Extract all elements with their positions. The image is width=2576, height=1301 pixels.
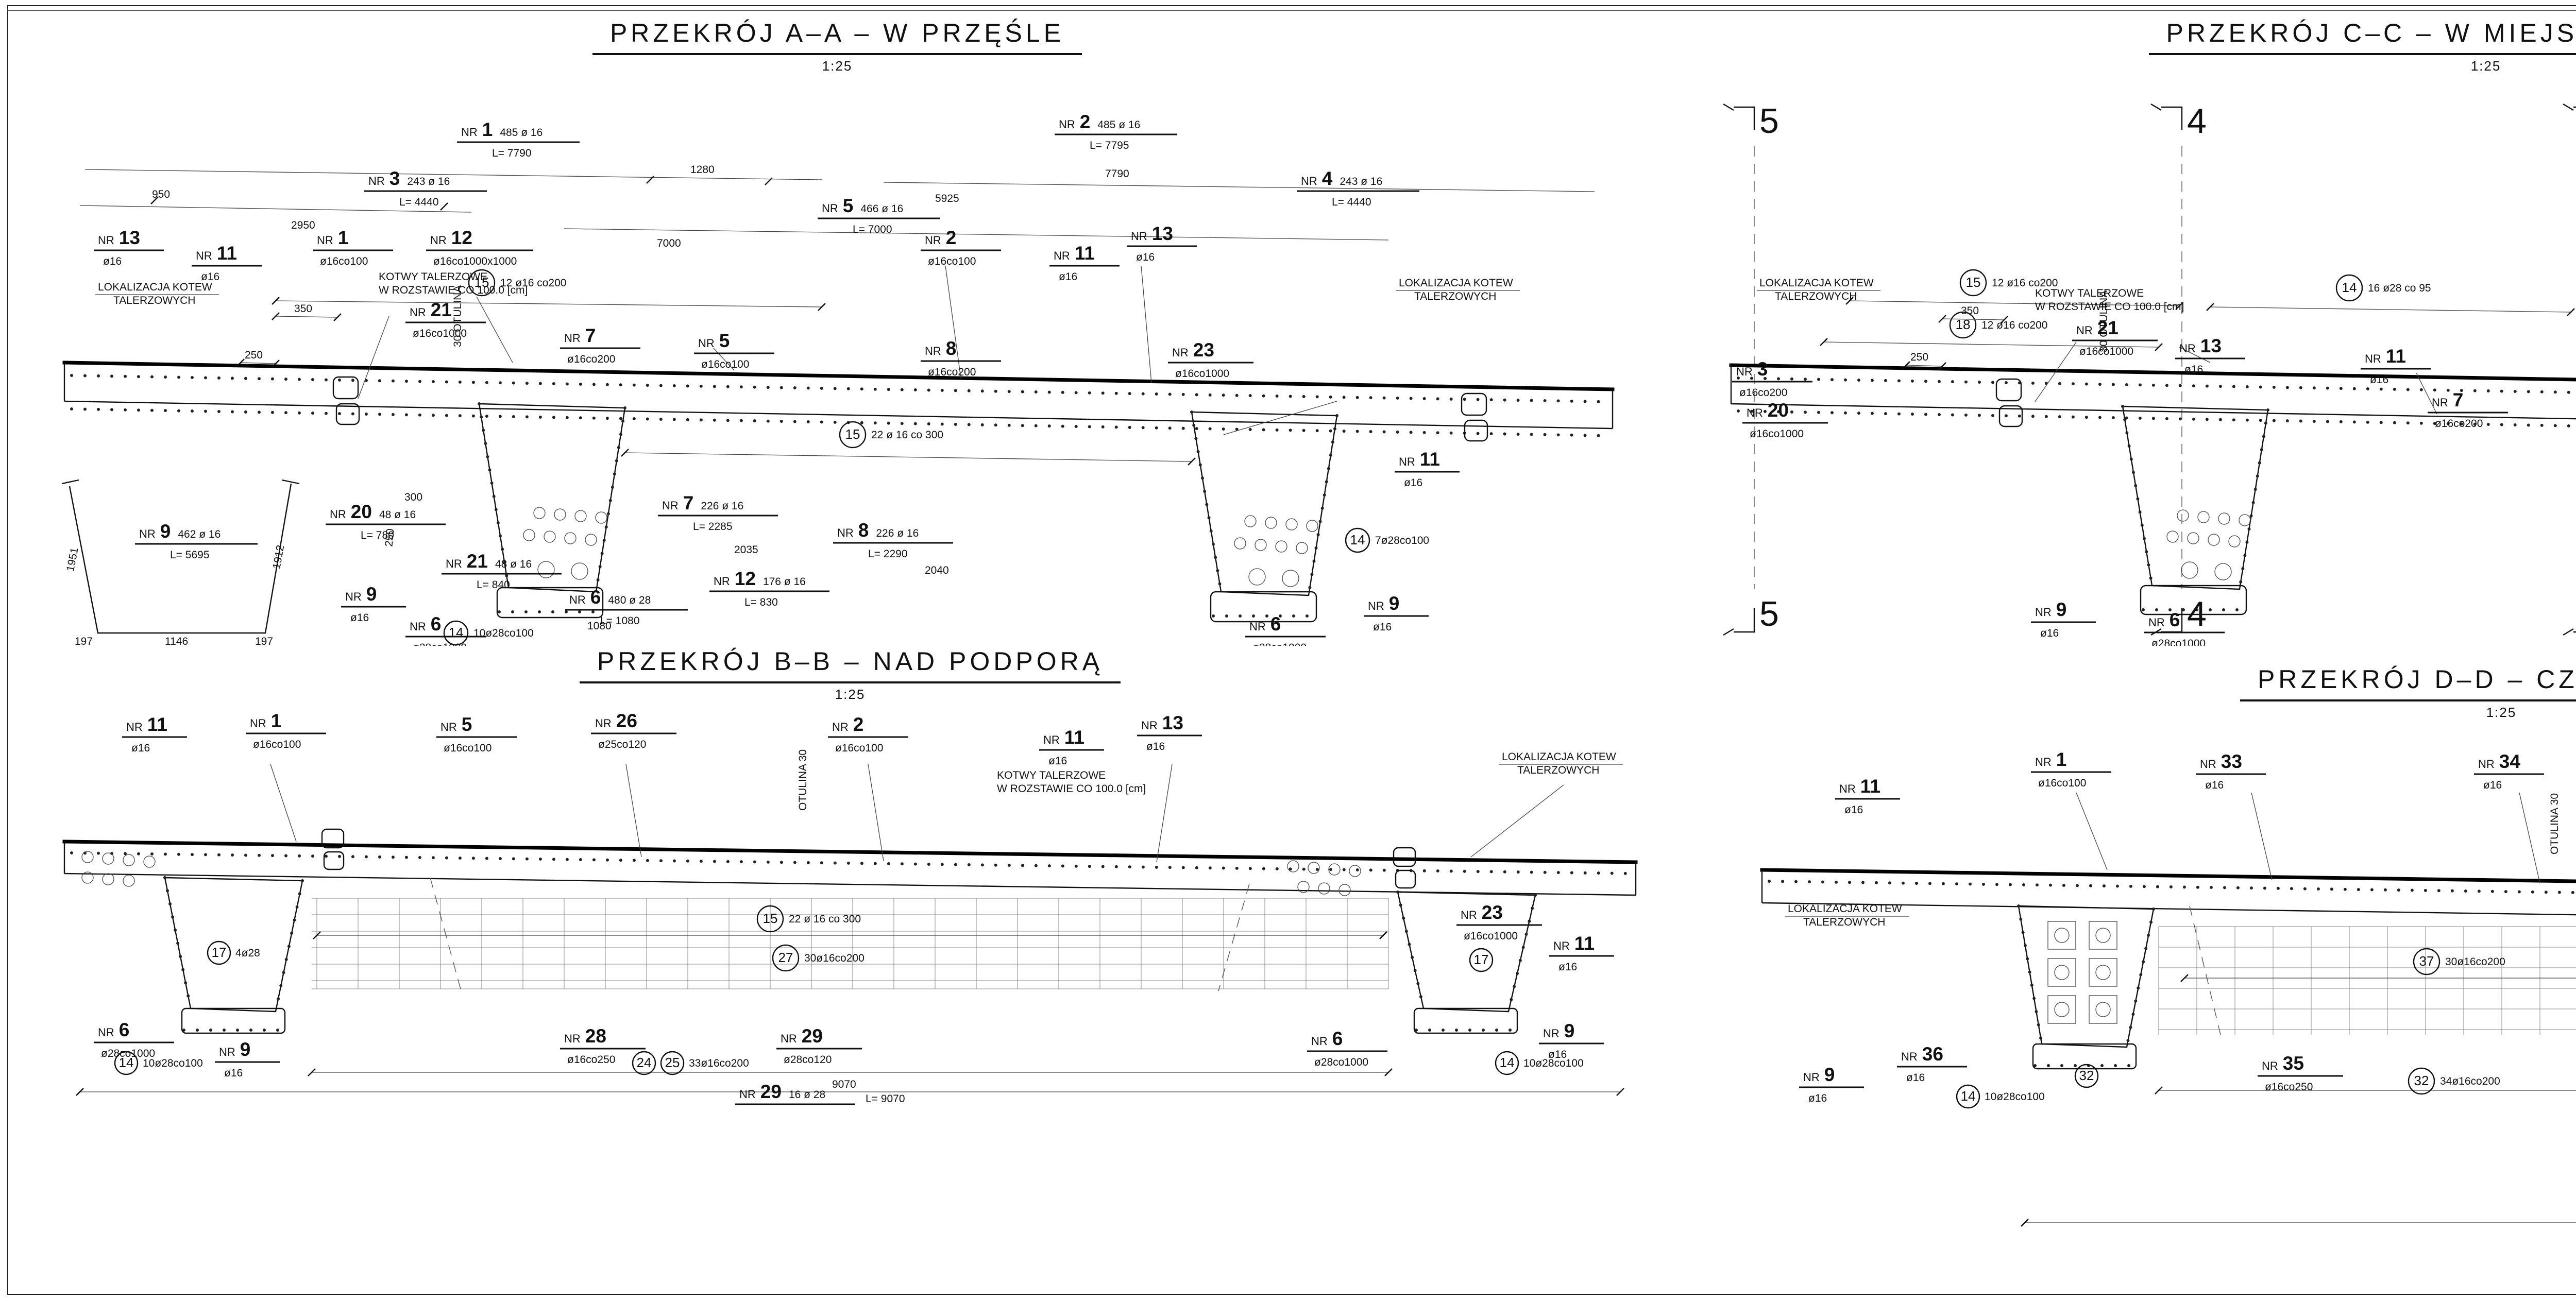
svg-text:NR1: NR1 bbox=[2035, 749, 2066, 770]
svg-text:TALERZOWYCH: TALERZOWYCH bbox=[1803, 916, 1885, 928]
svg-text:NR9462 ø 16: NR9462 ø 16 bbox=[139, 521, 221, 542]
dim: 2035 bbox=[734, 544, 758, 556]
section-dd-drawing: NR11ø16 NR1ø16co100 NR33ø16 NR34ø16 NR2ø… bbox=[1747, 721, 2576, 1256]
note-otulina: OTULINA 30 bbox=[2549, 793, 2561, 854]
section-bb-panel: PRZEKRÓJ B–B – NAD PODPORĄ 1:25 NR11ø16 … bbox=[49, 646, 1651, 1120]
rebar-callout: NR21ø16co1000 bbox=[405, 299, 486, 339]
rebar-callout: NR11ø16 bbox=[1039, 727, 1104, 767]
svg-text:L= 2290: L= 2290 bbox=[868, 548, 908, 560]
dim: 5925 bbox=[935, 193, 959, 204]
rebar-callout: NR9ø16 bbox=[215, 1039, 280, 1079]
rebar-mesh bbox=[312, 898, 1388, 989]
cut-mark: 5 bbox=[1723, 101, 1779, 141]
svg-text:NR6: NR6 bbox=[1311, 1028, 1343, 1049]
bar-shape-label: NR5466 ø 16L= 7000 bbox=[818, 195, 940, 235]
svg-text:ø16: ø16 bbox=[350, 612, 369, 624]
svg-text:ø16: ø16 bbox=[1558, 961, 1577, 973]
svg-text:L= 2285: L= 2285 bbox=[693, 521, 733, 533]
dimension: 350 bbox=[272, 303, 341, 321]
svg-text:34ø16co200: 34ø16co200 bbox=[2440, 1075, 2500, 1087]
svg-text:1951: 1951 bbox=[64, 546, 80, 572]
svg-text:27: 27 bbox=[778, 950, 793, 965]
svg-text:ø16: ø16 bbox=[1906, 1072, 1925, 1084]
section-cc-title: PRZEKRÓJ C–C – W MIEJSCU STYKU FAZ bbox=[2149, 18, 2576, 55]
svg-text:ø16: ø16 bbox=[2184, 364, 2203, 375]
svg-text:NR9: NR9 bbox=[1803, 1064, 1835, 1085]
rebar-callout: NR36ø16 bbox=[1897, 1043, 1967, 1084]
svg-text:NR2485 ø 16: NR2485 ø 16 bbox=[1059, 111, 1140, 132]
dim: 300 bbox=[404, 491, 422, 503]
svg-text:NR8: NR8 bbox=[925, 338, 956, 359]
svg-text:17: 17 bbox=[212, 945, 227, 960]
svg-text:9070: 9070 bbox=[832, 1079, 856, 1090]
note-lokalizacja: LOKALIZACJA KOTEWTALERZOWYCH bbox=[1499, 751, 1623, 776]
svg-text:ø16: ø16 bbox=[2370, 374, 2388, 386]
deck-slab bbox=[64, 842, 1636, 895]
dimension: 9070 bbox=[76, 1079, 1624, 1095]
svg-text:24: 24 bbox=[637, 1055, 652, 1070]
svg-text:NR5466 ø 16: NR5466 ø 16 bbox=[822, 195, 903, 216]
svg-text:ø16co100: ø16co100 bbox=[701, 358, 749, 370]
svg-text:4ø28: 4ø28 bbox=[235, 947, 260, 959]
rebar-callout: NR13ø16 bbox=[2175, 335, 2245, 375]
dim: 7790 bbox=[1105, 168, 1129, 180]
svg-text:LOKALIZACJA KOTEW: LOKALIZACJA KOTEW bbox=[1759, 277, 1874, 289]
dimension bbox=[308, 1069, 1392, 1076]
dim: 950 bbox=[152, 189, 170, 200]
cut-mark: 5 bbox=[1723, 594, 1779, 635]
rebar-callout: NR2ø16co100 bbox=[921, 227, 1001, 267]
bar-shape-label: NR6480 ø 28L= 1080 bbox=[565, 587, 688, 627]
section-bb-head: PRZEKRÓJ B–B – NAD PODPORĄ 1:25 bbox=[49, 646, 1651, 703]
section-bb-drawing: NR11ø16 NR1ø16co100 NR5ø16co100 NR26ø25c… bbox=[49, 703, 1651, 1115]
cut-mark: 4 bbox=[2151, 101, 2207, 141]
rebar-callout: NR13ø16 bbox=[1137, 712, 1202, 752]
right-girder bbox=[1192, 412, 1337, 622]
svg-text:ø16: ø16 bbox=[1404, 477, 1422, 489]
svg-text:1146: 1146 bbox=[165, 636, 188, 646]
svg-text:12 ø16 co200: 12 ø16 co200 bbox=[1981, 319, 2047, 331]
svg-text:ø16: ø16 bbox=[2483, 779, 2502, 791]
svg-text:NR11: NR11 bbox=[1043, 727, 1084, 748]
bar-shape-label: NR12176 ø 16L= 830 bbox=[709, 568, 829, 608]
svg-text:250: 250 bbox=[245, 349, 263, 361]
leader-lines bbox=[2076, 777, 2576, 891]
svg-text:30ø16co200: 30ø16co200 bbox=[2445, 956, 2505, 968]
bar-mark-bubble: 174ø28 bbox=[208, 941, 260, 964]
rebar-callout: NR13ø16 bbox=[94, 227, 164, 267]
svg-text:NR1: NR1 bbox=[250, 710, 281, 731]
rebar-callout: NR21ø16co1000 bbox=[2072, 317, 2158, 357]
svg-text:7ø28co100: 7ø28co100 bbox=[1375, 535, 1429, 546]
svg-text:NR7: NR7 bbox=[564, 325, 596, 346]
rebar-callout: NR2ø16co100 bbox=[828, 714, 908, 754]
svg-text:NR11: NR11 bbox=[196, 243, 237, 264]
svg-text:KOTWY TALERZOWE: KOTWY TALERZOWE bbox=[379, 271, 487, 283]
rebar-callout: NR9ø16 bbox=[1364, 593, 1429, 633]
note-kotwy: KOTWY TALERZOWEW ROZSTAWIE CO 100.0 [cm] bbox=[997, 769, 1146, 795]
svg-text:ø16: ø16 bbox=[131, 742, 150, 754]
bar-shape-label: NR2485 ø 16L= 7795 bbox=[1055, 111, 1177, 151]
svg-text:NR12176 ø 16: NR12176 ø 16 bbox=[714, 568, 806, 589]
svg-text:L= 7000: L= 7000 bbox=[853, 224, 892, 235]
svg-text:NR6: NR6 bbox=[2148, 609, 2180, 630]
bar-mark-bubble: 2730ø16co200 bbox=[773, 945, 865, 971]
svg-text:30ø16co200: 30ø16co200 bbox=[804, 952, 865, 964]
rebar-callout: NR11ø16 bbox=[1049, 243, 1120, 283]
svg-text:ø16co100: ø16co100 bbox=[444, 742, 492, 754]
cut-mark: 3 bbox=[2563, 101, 2576, 141]
svg-text:L= 830: L= 830 bbox=[744, 596, 778, 608]
svg-text:ø16: ø16 bbox=[1808, 1092, 1827, 1104]
svg-text:NR13: NR13 bbox=[2179, 335, 2222, 356]
section-bb-scale: 1:25 bbox=[49, 687, 1651, 703]
dimension: 9070 bbox=[2021, 1209, 2576, 1226]
bar-shape-label: NR2916 ø 28L= 9070 bbox=[735, 1081, 905, 1105]
note-otulina: 30 OTULINA bbox=[452, 285, 464, 347]
svg-text:W ROZSTAWIE CO 100.0 [cm]: W ROZSTAWIE CO 100.0 [cm] bbox=[997, 783, 1146, 795]
svg-text:ø16: ø16 bbox=[1136, 251, 1155, 263]
svg-text:NR21: NR21 bbox=[2076, 317, 2119, 338]
svg-text:22 ø 16 co 300: 22 ø 16 co 300 bbox=[871, 429, 943, 441]
svg-text:NR11: NR11 bbox=[1839, 776, 1880, 797]
svg-text:17: 17 bbox=[1474, 952, 1489, 967]
sheet-border-inner bbox=[7, 10, 2576, 11]
plate-anchor-symbol bbox=[1394, 848, 1415, 888]
svg-text:NR28: NR28 bbox=[564, 1025, 606, 1047]
bar-shape-label: NR2148 ø 16L= 840 bbox=[442, 551, 562, 591]
svg-text:ø16co250: ø16co250 bbox=[2265, 1081, 2313, 1093]
rebar-callout: NR26ø25co120 bbox=[591, 710, 676, 750]
bar-mark-bubble: 1522 ø 16 co 300 bbox=[840, 422, 943, 448]
svg-text:NR6: NR6 bbox=[410, 613, 441, 635]
svg-text:1912: 1912 bbox=[270, 544, 286, 570]
bar-mark-bubble: 1410ø28co100 bbox=[1496, 1052, 1584, 1074]
svg-text:197: 197 bbox=[255, 636, 273, 646]
svg-text:ø16co250: ø16co250 bbox=[567, 1054, 615, 1066]
svg-text:NR1: NR1 bbox=[317, 227, 348, 248]
svg-text:5: 5 bbox=[1759, 594, 1779, 634]
svg-text:ø16co200: ø16co200 bbox=[2435, 418, 2483, 430]
rebar-callout: NR35ø16co250 bbox=[2258, 1053, 2343, 1093]
svg-text:ø16: ø16 bbox=[1059, 271, 1077, 283]
dimension bbox=[313, 932, 1387, 939]
stirrup-schematic: 1951 1912 1146 197 197 bbox=[62, 480, 299, 646]
svg-text:250: 250 bbox=[1910, 351, 1928, 363]
svg-text:LOKALIZACJA KOTEW: LOKALIZACJA KOTEW bbox=[1399, 277, 1513, 289]
section-cc-head: PRZEKRÓJ C–C – W MIEJSCU STYKU FAZ 1:25 bbox=[1716, 18, 2576, 74]
rebar-callout: NR8ø16co200 bbox=[921, 338, 1001, 378]
plate-anchor-symbol bbox=[333, 377, 359, 424]
section-bb-title: PRZEKRÓJ B–B – NAD PODPORĄ bbox=[580, 646, 1121, 683]
svg-text:NR35: NR35 bbox=[2262, 1053, 2304, 1074]
svg-text:197: 197 bbox=[75, 636, 93, 646]
rebar-callout: NR11ø16 bbox=[1395, 449, 1460, 489]
svg-text:ø16co100: ø16co100 bbox=[928, 255, 976, 267]
svg-text:NR12: NR12 bbox=[430, 227, 472, 248]
svg-text:ø16co100: ø16co100 bbox=[253, 739, 301, 750]
svg-text:L= 7795: L= 7795 bbox=[1090, 140, 1129, 151]
dim: 1280 bbox=[690, 164, 715, 176]
section-dd-scale: 1:25 bbox=[1747, 705, 2576, 721]
rebar-callout: NR5ø16co100 bbox=[694, 330, 774, 370]
section-dd-head: PRZEKRÓJ D–D – CZOŁO BELKI 1:25 bbox=[1747, 664, 2576, 721]
svg-text:350: 350 bbox=[1961, 305, 1979, 317]
svg-text:15: 15 bbox=[845, 426, 860, 442]
svg-text:ø16co1000: ø16co1000 bbox=[1464, 930, 1518, 942]
svg-text:NR3243 ø 16: NR3243 ø 16 bbox=[368, 168, 450, 189]
svg-text:L= 4440: L= 4440 bbox=[399, 196, 439, 208]
svg-text:ø16co1000: ø16co1000 bbox=[1175, 368, 1229, 380]
svg-text:ø16: ø16 bbox=[1373, 621, 1392, 633]
section-aa-title: PRZEKRÓJ A–A – W PRZĘŚLE bbox=[592, 18, 1082, 55]
rebar-callout: NR5ø16co100 bbox=[436, 714, 517, 754]
hidden-edges bbox=[430, 878, 1249, 991]
svg-text:ø16: ø16 bbox=[2040, 627, 2059, 639]
svg-text:NR8226 ø 16: NR8226 ø 16 bbox=[837, 520, 919, 541]
bar-mark-bubble: 1522 ø 16 co 300 bbox=[757, 906, 861, 932]
svg-text:ø16: ø16 bbox=[1548, 1049, 1567, 1060]
bar-shape-label: NR7226 ø 16L= 2285 bbox=[658, 492, 778, 533]
svg-text:ø16co100: ø16co100 bbox=[320, 255, 368, 267]
dimension bbox=[272, 297, 825, 311]
svg-text:NR2: NR2 bbox=[832, 714, 863, 735]
section-aa-drawing: NR1485 ø 16L= 7790 NR2485 ø 16L= 7795 NR… bbox=[49, 74, 1625, 646]
rebar-callout: NR29ø28co120 bbox=[776, 1025, 862, 1066]
dim: 2040 bbox=[925, 564, 949, 576]
svg-text:ø16: ø16 bbox=[1146, 741, 1165, 752]
rebar-callout: NR1ø16co100 bbox=[313, 227, 393, 267]
plate-anchor-symbol bbox=[1996, 379, 2022, 426]
cut-mark: 3 bbox=[2563, 594, 2576, 635]
svg-text:NR13: NR13 bbox=[1131, 223, 1173, 244]
svg-text:NR9: NR9 bbox=[219, 1039, 250, 1060]
svg-text:TALERZOWYCH: TALERZOWYCH bbox=[1775, 290, 1857, 302]
svg-text:14: 14 bbox=[1961, 1088, 1976, 1104]
deck-slab bbox=[64, 363, 1613, 436]
rebar-callout: NR9ø16 bbox=[2031, 599, 2096, 639]
svg-text:NR23: NR23 bbox=[1172, 339, 1214, 361]
section-cc-drawing: 5 4 3 2 1 6 bbox=[1716, 74, 2576, 646]
dim: 2950 bbox=[291, 219, 315, 231]
bar-mark-bubble: 1416 ø28 co 95 bbox=[2336, 275, 2431, 301]
dimension bbox=[2207, 303, 2574, 316]
svg-text:14: 14 bbox=[2342, 280, 2357, 295]
svg-text:NR11: NR11 bbox=[1553, 933, 1595, 954]
svg-text:NR26: NR26 bbox=[595, 710, 637, 731]
bar-mark-bubble: 2533ø16co200 bbox=[661, 1052, 749, 1074]
svg-text:L= 840: L= 840 bbox=[477, 579, 510, 591]
rebar-callout: NR9ø16 bbox=[1539, 1020, 1604, 1060]
svg-text:37: 37 bbox=[2419, 953, 2434, 969]
rebar-callout: NR1ø16co100 bbox=[246, 710, 326, 750]
bar-shape-label: NR8226 ø 16L= 2290 bbox=[833, 520, 953, 560]
dimension bbox=[621, 449, 1195, 465]
right-girder bbox=[1287, 861, 1535, 1033]
svg-text:14: 14 bbox=[449, 625, 464, 640]
svg-text:NR2: NR2 bbox=[925, 227, 956, 248]
svg-text:32: 32 bbox=[2414, 1073, 2429, 1088]
svg-text:TALERZOWYCH: TALERZOWYCH bbox=[1414, 290, 1496, 302]
svg-text:ø28co1000: ø28co1000 bbox=[101, 1048, 155, 1059]
svg-text:NR11: NR11 bbox=[126, 714, 167, 735]
svg-text:NR2048 ø 16: NR2048 ø 16 bbox=[330, 501, 416, 522]
svg-text:NR2148 ø 16: NR2148 ø 16 bbox=[446, 551, 532, 572]
svg-text:LOKALIZACJA KOTEW: LOKALIZACJA KOTEW bbox=[98, 281, 212, 293]
rebar-callout: NR13ø16 bbox=[1127, 223, 1197, 263]
left-girder bbox=[2123, 406, 2268, 614]
bar-mark-bubble: 3730ø16co200 bbox=[2414, 949, 2505, 974]
svg-text:ø16co100: ø16co100 bbox=[835, 742, 883, 754]
dimension bbox=[2155, 1087, 2576, 1094]
svg-text:350: 350 bbox=[294, 303, 312, 315]
hidden-edges bbox=[2190, 906, 2576, 1035]
note-lokalizacja: LOKALIZACJA KOTEWTALERZOWYCH bbox=[95, 281, 219, 306]
rebar-callout: NR6ø28co1000 bbox=[1245, 613, 1326, 646]
svg-text:15: 15 bbox=[1966, 275, 1981, 290]
note-lokalizacja: LOKALIZACJA KOTEWTALERZOWYCH bbox=[1757, 277, 1880, 302]
svg-text:ø28co120: ø28co120 bbox=[784, 1054, 832, 1066]
svg-text:NR11: NR11 bbox=[1399, 449, 1440, 470]
svg-text:NR7226 ø 16: NR7226 ø 16 bbox=[662, 492, 743, 513]
svg-text:ø16co200: ø16co200 bbox=[928, 366, 976, 378]
svg-text:NR20: NR20 bbox=[1747, 400, 1789, 421]
svg-text:ø28co1000: ø28co1000 bbox=[2151, 638, 2206, 646]
svg-text:ø28co1000: ø28co1000 bbox=[1314, 1056, 1368, 1068]
svg-text:14: 14 bbox=[1500, 1055, 1515, 1070]
svg-text:L= 4440: L= 4440 bbox=[1332, 196, 1371, 208]
svg-text:NR34: NR34 bbox=[2478, 751, 2520, 772]
svg-text:TALERZOWYCH: TALERZOWYCH bbox=[1517, 764, 1599, 776]
svg-text:NR4243 ø 16: NR4243 ø 16 bbox=[1301, 168, 1382, 189]
bar-shape-label: NR1485 ø 16L= 7790 bbox=[457, 119, 580, 159]
bar-mark-bubble: 32 bbox=[2075, 1065, 2098, 1087]
svg-text:ø16: ø16 bbox=[103, 255, 122, 267]
bar-mark-bubble: 147ø28co100 bbox=[1346, 528, 1429, 552]
svg-text:NR7: NR7 bbox=[2432, 389, 2463, 410]
svg-text:L= 7790: L= 7790 bbox=[492, 147, 532, 159]
svg-text:NR33: NR33 bbox=[2200, 751, 2242, 772]
svg-text:32: 32 bbox=[2079, 1068, 2094, 1083]
section-dd-title: PRZEKRÓJ D–D – CZOŁO BELKI bbox=[2240, 664, 2576, 701]
svg-text:ø16: ø16 bbox=[224, 1067, 243, 1079]
svg-text:NR5: NR5 bbox=[698, 330, 730, 351]
svg-text:L= 5695: L= 5695 bbox=[170, 549, 210, 561]
svg-text:NR36: NR36 bbox=[1901, 1043, 1943, 1065]
section-cc-panel: PRZEKRÓJ C–C – W MIEJSCU STYKU FAZ 1:25 … bbox=[1716, 18, 2576, 646]
section-dd-panel: PRZEKRÓJ D–D – CZOŁO BELKI 1:25 NR11ø16 … bbox=[1747, 664, 2576, 1262]
dimension bbox=[2181, 974, 2576, 982]
svg-text:10ø28co100: 10ø28co100 bbox=[473, 627, 534, 639]
section-aa-panel: PRZEKRÓJ A–A – W PRZĘŚLE 1:25 NR1485 ø 1… bbox=[49, 18, 1625, 646]
plate-anchor-symbol bbox=[322, 829, 344, 869]
svg-text:ø16co1000x1000: ø16co1000x1000 bbox=[433, 255, 517, 267]
svg-text:NR9: NR9 bbox=[1543, 1020, 1574, 1041]
svg-text:14: 14 bbox=[1350, 532, 1365, 547]
rebar-callout: NR23ø16co1000 bbox=[1168, 339, 1253, 380]
svg-text:15: 15 bbox=[763, 911, 778, 926]
svg-text:NR9: NR9 bbox=[1368, 593, 1399, 614]
bar-mark-bubble: 24 bbox=[633, 1052, 655, 1074]
rebar-callout: NR11ø16 bbox=[1835, 776, 1900, 816]
rebar-callout: NR33ø16 bbox=[2196, 751, 2266, 791]
bar-mark-bubble: 1410ø28co100 bbox=[1957, 1085, 2045, 1108]
rebar-callout: NR12ø16co1000x1000 bbox=[426, 227, 533, 267]
svg-text:NR1485 ø 16: NR1485 ø 16 bbox=[461, 119, 543, 140]
svg-text:ø28co1000: ø28co1000 bbox=[413, 642, 467, 646]
svg-text:TALERZOWYCH: TALERZOWYCH bbox=[113, 295, 195, 306]
svg-text:25: 25 bbox=[665, 1055, 680, 1070]
svg-text:NR29: NR29 bbox=[781, 1025, 823, 1047]
note-otulina: OTULINA 30 bbox=[797, 749, 809, 811]
svg-text:NR6: NR6 bbox=[98, 1019, 129, 1040]
bar-shape-label: NR9462 ø 16L= 5695 bbox=[135, 521, 258, 561]
rebar-callout: NR1ø16co100 bbox=[2031, 749, 2111, 789]
svg-text:L= 9070: L= 9070 bbox=[866, 1093, 905, 1105]
svg-text:4: 4 bbox=[2187, 594, 2207, 634]
svg-text:22 ø 16 co 300: 22 ø 16 co 300 bbox=[789, 913, 861, 925]
rebar-callout: NR9ø16 bbox=[1799, 1064, 1864, 1104]
svg-text:ø28co1000: ø28co1000 bbox=[1252, 642, 1307, 646]
note-lokalizacja: LOKALIZACJA KOTEWTALERZOWYCH bbox=[1785, 903, 1909, 928]
section-cc-scale: 1:25 bbox=[1716, 58, 2576, 74]
svg-text:NR9: NR9 bbox=[2035, 599, 2066, 620]
rebar-callout: NR34ø16 bbox=[2474, 751, 2544, 791]
svg-text:NR11: NR11 bbox=[2365, 346, 2406, 367]
svg-text:ø16: ø16 bbox=[2205, 779, 2224, 791]
rebar-callout: NR9ø16 bbox=[341, 584, 406, 624]
rebar-callout: NR11ø16 bbox=[2361, 346, 2431, 386]
dim: 250 bbox=[383, 528, 396, 547]
bar-mark-bubble: 17 bbox=[1470, 949, 1493, 971]
dim: 1080 bbox=[587, 620, 612, 632]
section-aa-head: PRZEKRÓJ A–A – W PRZĘŚLE 1:25 bbox=[49, 18, 1625, 74]
rebar-callout: NR7ø16co200 bbox=[560, 325, 640, 365]
svg-text:NR13: NR13 bbox=[98, 227, 140, 248]
svg-text:NR6480 ø 28: NR6480 ø 28 bbox=[569, 587, 651, 608]
svg-text:NR13: NR13 bbox=[1141, 712, 1183, 733]
svg-text:10ø28co100: 10ø28co100 bbox=[1985, 1091, 2045, 1103]
rebar-callout: NR11ø16 bbox=[1549, 933, 1614, 973]
section-aa-scale: 1:25 bbox=[49, 58, 1625, 74]
note-otulina: 30 OTULINA bbox=[2098, 290, 2110, 352]
svg-text:ø16: ø16 bbox=[1048, 755, 1067, 767]
svg-text:16 ø28 co 95: 16 ø28 co 95 bbox=[2368, 282, 2431, 294]
left-girder bbox=[82, 851, 302, 1033]
svg-text:KOTWY TALERZOWE: KOTWY TALERZOWE bbox=[2035, 287, 2144, 299]
rebar-callout: NR6ø28co1000 bbox=[94, 1019, 174, 1059]
svg-text:NR11: NR11 bbox=[1054, 243, 1095, 264]
svg-text:NR23: NR23 bbox=[1461, 902, 1503, 923]
rebar-callout: NR6ø28co1000 bbox=[1307, 1028, 1387, 1068]
left-girder bbox=[2019, 906, 2154, 1069]
svg-text:KOTWY TALERZOWE: KOTWY TALERZOWE bbox=[997, 769, 1106, 781]
svg-text:LOKALIZACJA KOTEW: LOKALIZACJA KOTEW bbox=[1502, 751, 1616, 763]
svg-text:ø16co200: ø16co200 bbox=[567, 353, 615, 365]
svg-text:NR9: NR9 bbox=[345, 584, 377, 605]
svg-text:ø16co1000: ø16co1000 bbox=[1750, 428, 1804, 440]
svg-text:5: 5 bbox=[1759, 101, 1779, 141]
rebar-callout: NR11ø16 bbox=[192, 243, 262, 283]
svg-text:4: 4 bbox=[2187, 101, 2207, 141]
rebar-callout: NR7ø16co200 bbox=[2428, 389, 2508, 430]
svg-text:33ø16co200: 33ø16co200 bbox=[689, 1057, 749, 1069]
note-lokalizacja: LOKALIZACJA KOTEWTALERZOWYCH bbox=[1396, 277, 1520, 302]
rebar-callout: NR11ø16 bbox=[122, 714, 187, 754]
svg-text:ø25co120: ø25co120 bbox=[598, 739, 646, 750]
svg-text:ø16co100: ø16co100 bbox=[2038, 777, 2086, 789]
svg-text:ø16: ø16 bbox=[1844, 804, 1863, 816]
